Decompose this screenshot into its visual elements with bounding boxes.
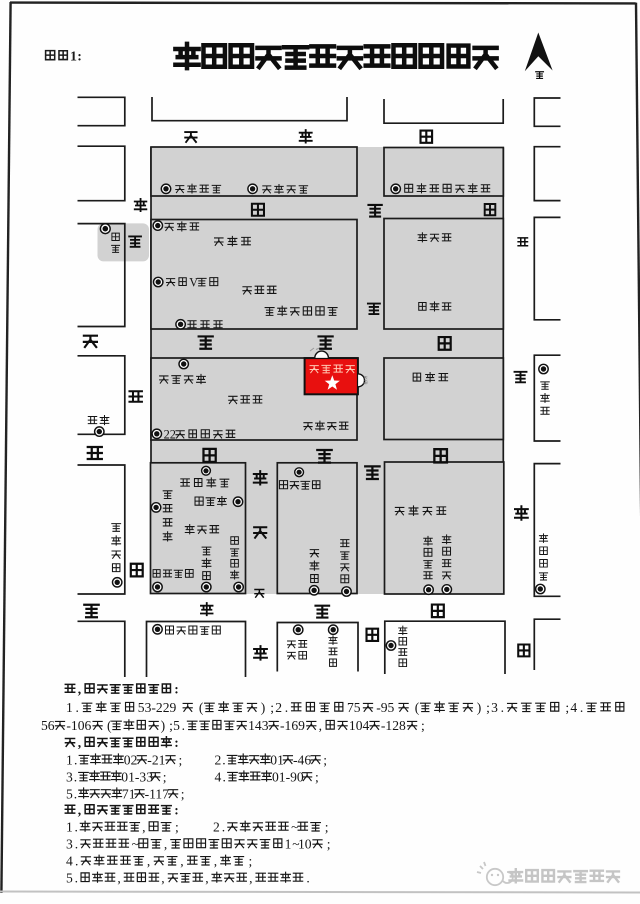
svg-text:;: ; <box>270 700 274 715</box>
svg-text:(: ( <box>107 718 112 734</box>
svg-text:22: 22 <box>164 428 176 442</box>
svg-text:(: ( <box>415 700 420 716</box>
svg-text:;: ; <box>181 786 185 801</box>
svg-text:-117: -117 <box>145 786 170 801</box>
svg-text:.: . <box>580 700 583 715</box>
svg-text:.: . <box>74 786 77 801</box>
svg-text:V: V <box>189 275 198 289</box>
svg-text:~: ~ <box>291 820 298 835</box>
svg-text:1: 1 <box>66 820 73 835</box>
svg-text:02: 02 <box>124 752 138 767</box>
svg-text:01-33: 01-33 <box>121 769 153 784</box>
svg-text:56: 56 <box>41 718 55 733</box>
svg-text:.: . <box>74 752 77 767</box>
svg-text:,: , <box>164 837 167 852</box>
svg-text:2: 2 <box>215 752 222 767</box>
svg-text:.: . <box>501 700 504 715</box>
svg-text:01: 01 <box>270 752 284 767</box>
svg-text::: : <box>77 50 82 65</box>
svg-text:5: 5 <box>66 786 73 801</box>
svg-text:10: 10 <box>298 837 312 852</box>
svg-text:,: , <box>78 735 81 750</box>
svg-text:5: 5 <box>173 718 180 733</box>
svg-text:-95: -95 <box>376 700 394 715</box>
svg-text:): ) <box>161 718 166 734</box>
svg-text:,: , <box>142 820 145 835</box>
svg-text:,: , <box>147 854 150 869</box>
svg-text:1: 1 <box>66 700 73 715</box>
svg-text:2: 2 <box>275 700 282 715</box>
svg-text:-169: -169 <box>280 718 305 733</box>
svg-text:.: . <box>222 820 225 835</box>
svg-text:;: ; <box>486 700 490 715</box>
svg-text:,: , <box>117 871 120 886</box>
svg-text:(: ( <box>199 700 204 716</box>
svg-text:-106: -106 <box>66 718 91 733</box>
svg-text:2: 2 <box>213 820 220 835</box>
svg-text:,: , <box>205 871 208 886</box>
svg-text:.: . <box>285 700 288 715</box>
svg-text:): ) <box>477 700 482 716</box>
svg-text:,: , <box>78 682 81 697</box>
svg-text:~: ~ <box>132 837 139 852</box>
svg-text:.: . <box>306 871 309 886</box>
svg-text:,: , <box>319 718 322 733</box>
svg-text::: : <box>174 682 179 697</box>
svg-text:104: 104 <box>349 718 370 733</box>
svg-text:;: ; <box>315 769 319 784</box>
svg-text:,: , <box>180 854 183 869</box>
svg-text:4: 4 <box>215 769 222 784</box>
svg-text:71: 71 <box>122 786 136 801</box>
svg-text:;: ; <box>179 752 183 767</box>
svg-text:3: 3 <box>66 837 73 852</box>
svg-text:5: 5 <box>66 871 73 886</box>
svg-text:1: 1 <box>285 837 292 852</box>
svg-text:143: 143 <box>248 718 269 733</box>
svg-text:3: 3 <box>66 769 73 784</box>
svg-text::: : <box>174 803 179 818</box>
svg-text:.: . <box>75 837 78 852</box>
svg-text:4: 4 <box>66 854 73 869</box>
svg-text:-128: -128 <box>381 718 406 733</box>
svg-text:1: 1 <box>70 50 77 65</box>
svg-text:1: 1 <box>66 752 73 767</box>
svg-text:-21: -21 <box>147 752 165 767</box>
svg-text:): ) <box>261 700 266 716</box>
svg-text:,: , <box>249 871 252 886</box>
svg-text:.: . <box>223 769 226 784</box>
svg-text:.: . <box>76 700 79 715</box>
svg-text:75: 75 <box>347 700 361 715</box>
svg-text:;: ; <box>325 820 329 835</box>
svg-text:01-90: 01-90 <box>272 769 304 784</box>
svg-text:.: . <box>222 752 225 767</box>
svg-text:,: , <box>78 803 81 818</box>
svg-text:.: . <box>75 871 78 886</box>
svg-text:4: 4 <box>570 700 577 715</box>
svg-text:;: ; <box>327 837 331 852</box>
svg-text:,: , <box>161 871 164 886</box>
svg-text:.: . <box>182 718 185 733</box>
svg-text:;: ; <box>249 854 253 869</box>
svg-text:.: . <box>75 854 78 869</box>
svg-text::: : <box>174 735 179 750</box>
svg-text:;: ; <box>175 820 179 835</box>
svg-text:;: ; <box>163 769 167 784</box>
svg-text:3: 3 <box>491 700 498 715</box>
svg-text:;: ; <box>323 752 327 767</box>
svg-text:;: ; <box>421 718 425 733</box>
svg-text:.: . <box>75 820 78 835</box>
svg-text:53-229: 53-229 <box>138 700 177 715</box>
svg-text:,: , <box>214 854 217 869</box>
svg-text:-46: -46 <box>293 752 311 767</box>
svg-text:.: . <box>74 769 77 784</box>
svg-text:;: ; <box>565 700 569 715</box>
